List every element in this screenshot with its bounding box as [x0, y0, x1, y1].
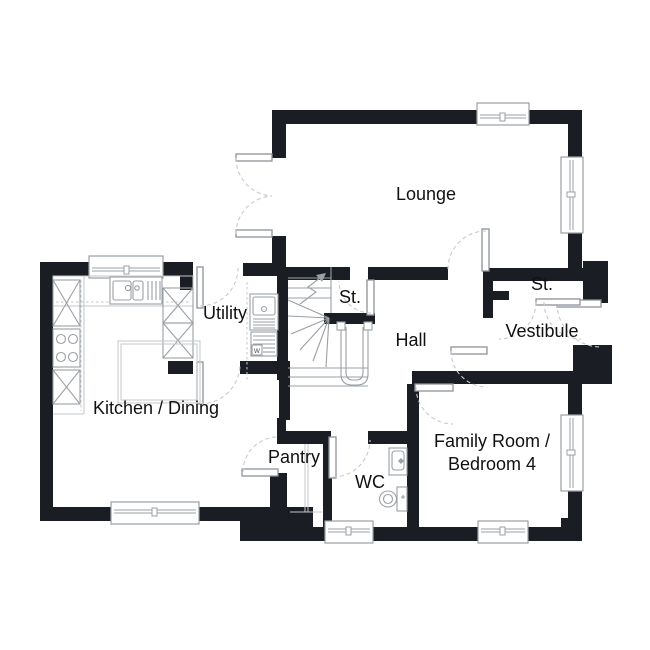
wall-segment [493, 291, 509, 300]
wall-segment [561, 518, 582, 530]
label-pantry: Pantry [268, 447, 320, 467]
window-lounge-top [477, 103, 529, 125]
window-family-right [561, 415, 583, 491]
door-lounge-hall [448, 229, 489, 271]
wall-segment [368, 431, 419, 444]
kitchen-sink [110, 277, 162, 304]
wash-basin [389, 448, 407, 475]
window-family-bottom [478, 521, 528, 543]
wall-segment [277, 267, 288, 380]
wall-segment [483, 281, 493, 318]
washing-machine: w [251, 332, 277, 356]
hob [53, 329, 80, 367]
label-hall: Hall [395, 330, 426, 350]
label-lounge: Lounge [396, 184, 456, 204]
label-store: St. [531, 274, 553, 294]
base-unit [53, 370, 80, 404]
label-stairs-store: St. [339, 287, 361, 307]
newel-post [337, 322, 345, 330]
wall-segment [272, 110, 286, 158]
door-utility [197, 267, 238, 308]
base-unit [53, 280, 80, 326]
wall-segment [243, 263, 286, 276]
window-lounge-right [561, 157, 583, 233]
wall-segment [277, 418, 286, 432]
wall-segment [40, 262, 53, 521]
handrail-inner [346, 327, 363, 380]
floor-plan: w Lounge St. Utility Hall St. Vestibule … [0, 0, 650, 650]
label-family-room-line2: Bedroom 4 [448, 454, 536, 474]
window-kitchen-bottom [111, 502, 199, 524]
floor-plan-drawing: w Lounge St. Utility Hall St. Vestibule … [0, 0, 650, 650]
window-wc-bottom [325, 521, 373, 543]
label-family-room-line1: Family Room / [434, 431, 550, 451]
wall-segment [279, 374, 290, 420]
handrail [341, 327, 368, 385]
wall-segment [412, 371, 612, 384]
wall-segment [272, 110, 582, 124]
wall-segment [368, 267, 448, 280]
wall-segment [168, 361, 193, 374]
wall-segment [277, 431, 331, 444]
window-kitchen-top [89, 256, 163, 278]
utility-sink [250, 294, 278, 330]
label-wc: WC [355, 472, 385, 492]
label-utility: Utility [203, 303, 247, 323]
label-vestibule: Vestibule [505, 321, 578, 341]
door-family-room [415, 384, 453, 424]
kitchen-fixtures [53, 276, 200, 414]
wall-segment [407, 384, 419, 527]
wall-segment [583, 261, 608, 303]
label-kitchen-dining: Kitchen / Dining [93, 398, 219, 418]
newel-post [364, 322, 372, 330]
double-door-lounge [236, 154, 272, 237]
staircase [288, 267, 372, 386]
washer-label: w [253, 346, 260, 355]
